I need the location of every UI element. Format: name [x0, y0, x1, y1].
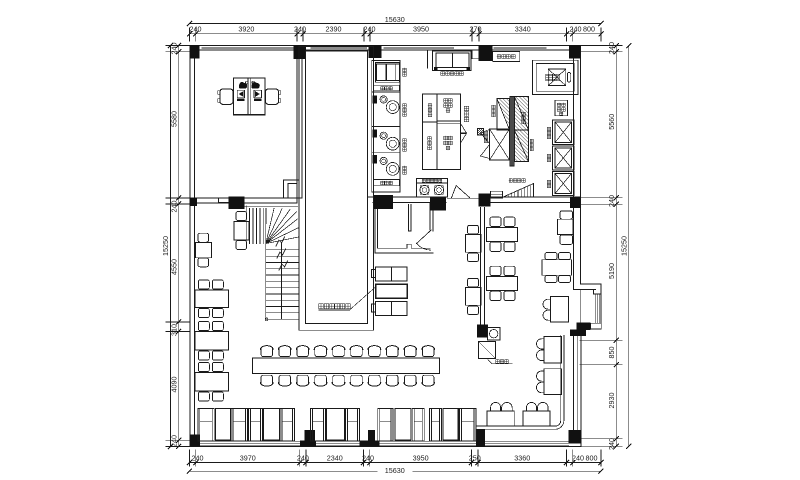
svg-text:240: 240: [607, 195, 616, 207]
svg-text:5190: 5190: [607, 263, 616, 279]
svg-text:240: 240: [297, 453, 309, 462]
svg-text:240: 240: [294, 25, 306, 34]
svg-text:850: 850: [607, 347, 616, 359]
svg-text:240: 240: [170, 43, 179, 55]
svg-text:5560: 5560: [607, 114, 616, 130]
svg-text:240: 240: [170, 435, 179, 447]
svg-text:4550: 4550: [170, 259, 179, 275]
svg-text:240: 240: [362, 453, 374, 462]
svg-text:2930: 2930: [607, 393, 616, 409]
svg-text:250: 250: [469, 453, 481, 462]
svg-text:3360: 3360: [514, 453, 530, 462]
svg-text:800: 800: [583, 25, 595, 34]
svg-text:15630: 15630: [385, 15, 405, 24]
svg-text:310: 310: [170, 324, 179, 336]
svg-text:240: 240: [190, 25, 202, 34]
svg-text:15630: 15630: [385, 466, 405, 475]
svg-text:2390: 2390: [326, 25, 342, 34]
svg-text:5580: 5580: [170, 111, 179, 127]
svg-text:15250: 15250: [620, 236, 629, 256]
svg-text:240: 240: [170, 201, 179, 213]
svg-text:270: 270: [470, 25, 482, 34]
svg-text:15250: 15250: [161, 236, 170, 256]
svg-text:2340: 2340: [327, 453, 343, 462]
svg-text:3340: 3340: [515, 25, 531, 34]
svg-text:240: 240: [192, 453, 204, 462]
svg-text:3950: 3950: [413, 453, 429, 462]
svg-text:240: 240: [570, 25, 582, 34]
svg-text:3950: 3950: [413, 25, 429, 34]
svg-text:240: 240: [607, 42, 616, 54]
svg-text:240: 240: [572, 453, 584, 462]
svg-text:4090: 4090: [170, 377, 179, 393]
svg-text:3920: 3920: [238, 25, 254, 34]
svg-text:240: 240: [607, 438, 616, 450]
svg-text:800: 800: [586, 453, 598, 462]
svg-text:3970: 3970: [240, 453, 256, 462]
svg-text:240: 240: [364, 25, 376, 34]
